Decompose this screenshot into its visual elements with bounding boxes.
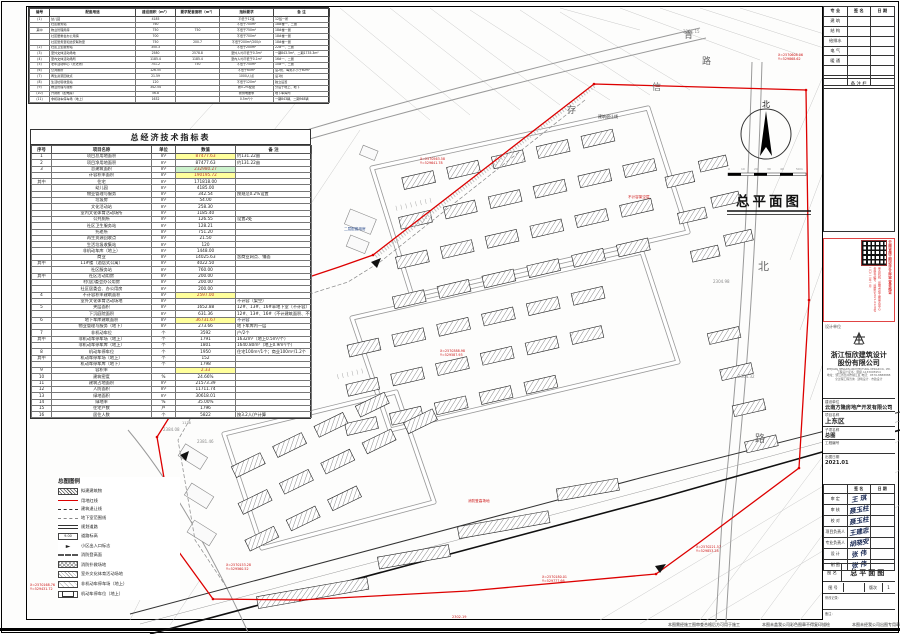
- field-box: 工程编号: [823, 439, 895, 452]
- dashdot-swatch-icon: [58, 509, 78, 510]
- date-cell: [871, 26, 895, 36]
- company-name-line2: 股份有限公司: [823, 359, 895, 367]
- dashw-swatch-icon: [58, 554, 78, 556]
- column-header: 备 注: [274, 9, 330, 17]
- plan-label: 50m: [796, 167, 803, 171]
- plan-label: 不计容架空层: [628, 194, 650, 199]
- column-header: 日 期: [871, 7, 895, 17]
- unit: 个: [152, 412, 176, 418]
- legend-label: 消防登高面: [81, 552, 102, 558]
- plan-label: Y=529587.93: [440, 353, 463, 357]
- legend-item: 消防登高面: [58, 552, 180, 558]
- table-row: 项目负责人王建忠: [824, 526, 895, 537]
- table-row: 审 定王 琪: [824, 493, 895, 504]
- review-stamp: 云南省施工图设计文件审查合格证 审查机构：昆明市施工图审查中心合格书编号：昆审字…: [823, 238, 895, 322]
- diag-swatch-icon: [58, 571, 78, 578]
- table-row: 给排水: [824, 36, 895, 46]
- legend-label: 拟建建筑物: [81, 488, 102, 494]
- plan-label: 2304.98: [713, 279, 730, 284]
- signoff-grid: 专 业签 名日 期建 筑结 构给排水电 气暖 通: [823, 6, 895, 86]
- plan-label: 10: [741, 167, 745, 171]
- role-cell: 审 定: [824, 493, 848, 504]
- note-box-2: 备注：: [823, 609, 895, 618]
- margin-note: 本图需经施工图审查合格后方可用于施工: [668, 622, 740, 628]
- column-header: 配套用途: [50, 9, 136, 17]
- field-box: 建设单位云南方隆房地产开发有限公司: [823, 398, 895, 411]
- stamp-title: 云南省施工图设计文件审查合格证: [888, 240, 892, 320]
- plan-label: Y=529853.28: [696, 549, 719, 553]
- field-value: 上东区: [825, 418, 893, 426]
- dbl-swatch-icon: [58, 525, 78, 529]
- table-cell: 0.5m²/个: [220, 97, 274, 103]
- discipline-cell: 暖 通: [824, 56, 848, 66]
- value: 5822: [176, 412, 236, 418]
- facilities-table: 编号配套用途建设面积（m²）要求配套面积（m²）指标要求备 注 (1)幼儿园41…: [28, 7, 329, 104]
- role-cell: 专业负责人: [824, 537, 848, 548]
- plan-label: Y=529641.78: [420, 161, 443, 165]
- plan-label: 2381.15: [683, 29, 700, 34]
- car-rect-icon: [62, 591, 74, 597]
- field-value: 云南方隆房地产开发有限公司: [825, 405, 893, 411]
- column-header: 编号: [30, 9, 50, 17]
- table-cell: 1632: [136, 97, 176, 103]
- column-header: 备 注: [236, 146, 312, 154]
- drawing-sheet: 北 总平面图 青路信存北路2384.0811362381.462381.1523…: [0, 0, 900, 634]
- legend-item: 建筑退让线: [58, 506, 180, 512]
- legend-item: 规划道路: [58, 524, 180, 530]
- column-header: [824, 485, 848, 494]
- legend-label: 用地红线: [81, 498, 98, 504]
- table-row: 专业负责人胡晓安: [824, 537, 895, 548]
- column-header: 指标要求: [220, 9, 274, 17]
- signature-cell: [847, 26, 871, 36]
- legend-item: 用地红线: [58, 498, 180, 504]
- plan-label: 2384.08: [163, 427, 180, 432]
- field-value: 2021.01: [825, 460, 893, 466]
- legend-item: 拟建建筑物: [58, 488, 180, 495]
- company-name-en: ZHEJIANG HENGXIN ARCHITECTURAL DESIGN CO…: [827, 368, 891, 371]
- plan-label: 2304.32: [738, 374, 755, 379]
- discipline-cell: [824, 66, 848, 76]
- stamp-line: 二〇二一年一月: [868, 267, 872, 319]
- table-row: [824, 66, 895, 76]
- arrow-swatch-icon: ►: [58, 543, 78, 550]
- column-header: 建设面积（m²）: [136, 9, 176, 17]
- role-cell: 设 计: [824, 548, 848, 559]
- plan-label: Y=529777.66: [542, 579, 565, 583]
- date-cell: [871, 56, 895, 66]
- column-header: 单位: [152, 146, 176, 154]
- note-box-1: 修改记录：: [823, 593, 895, 607]
- item-name: 居住人数: [52, 412, 152, 418]
- column-header: 要求配套面积（m²）: [176, 9, 220, 17]
- margin-note: 本图未盖我公司彩色图章不得复印描绘: [762, 622, 830, 628]
- plan-label: 建筑退让线: [598, 113, 618, 119]
- hatch-swatch-icon: [58, 488, 78, 495]
- plan-label: Y=529560.52: [226, 567, 249, 571]
- table-cell: (11): [30, 97, 50, 103]
- plan-label: 存: [567, 104, 576, 116]
- plan-label: 30: [767, 167, 771, 171]
- legend-label: 消防扑救场地: [81, 562, 106, 568]
- light-swatch-icon: [58, 581, 78, 588]
- column-header: 签 名: [847, 7, 871, 17]
- north-label: 北: [762, 100, 770, 109]
- legend-label: 小区出入口标志: [81, 543, 110, 549]
- table-row: 暖 通: [824, 56, 895, 66]
- elev-swatch-icon: 9.00: [58, 533, 78, 540]
- column-header: 日 期: [871, 485, 895, 494]
- plan-label: 2381.46: [197, 439, 214, 444]
- date-cell: [871, 504, 895, 515]
- revision-value: 1: [883, 584, 895, 592]
- signature-cell: [847, 36, 871, 46]
- stamp-line: 审查机构：昆明市施工图审查中心: [877, 267, 881, 319]
- signature-cell: [847, 46, 871, 56]
- plan-label: 40: [780, 167, 784, 171]
- column-header: 签 名: [847, 485, 871, 494]
- legend-label: 机动车停车位（地上）: [81, 591, 123, 597]
- discipline-cell: 电 气: [824, 46, 848, 56]
- date-cell: [871, 16, 895, 26]
- plan-label: 0: [728, 167, 730, 171]
- stamp-line: 合格书编号：昆审字2021-0128号: [872, 267, 876, 319]
- dash-swatch-icon: [58, 518, 78, 519]
- plan-label: 1136: [182, 421, 191, 425]
- signature-cell: [847, 66, 871, 76]
- signature-cell: [847, 56, 871, 66]
- company-logo-icon: [851, 331, 867, 347]
- field-box: 项目名称上东区: [823, 411, 895, 426]
- economic-indicators-table: 总经济技术指标表 序号项目名称单位数值备 注 1项目总用地面积m²87477.6…: [30, 129, 311, 419]
- field-box: 子项名称总图: [823, 426, 895, 439]
- drawing-name-row: 图 名 总平面图: [823, 563, 895, 581]
- empty-remarks-box: [823, 88, 895, 232]
- date-cell: [871, 515, 895, 526]
- legend-label: 非机动车停车场（地上）: [81, 581, 127, 587]
- table-row: 结 构: [824, 26, 895, 36]
- legend: 总图图例 拟建建筑物用地红线建筑退让线地下室范围线规划道路9.00道路标高►小区…: [58, 477, 180, 600]
- plan-label: Y=529431.72: [30, 587, 53, 591]
- legend-label: 地下室范围线: [81, 515, 106, 521]
- table-cell: [176, 97, 220, 103]
- note: 12#、13#、16#（不计建筑面积、不计容积率）: [236, 311, 312, 317]
- date-cell: [871, 526, 895, 537]
- table-row: (11)非机动车停车场（地上）16320.5m²/个一期843辆、二期948辆: [30, 97, 330, 103]
- date-cell: [871, 46, 895, 56]
- drawing-name-value: 总平面图: [842, 568, 895, 578]
- legend-item: ►小区出入口标志: [58, 543, 180, 550]
- plan-label: 信: [652, 81, 661, 93]
- column-header: 专 业: [824, 7, 848, 17]
- signature-table: 签 名日 期审 定王 琪审 核聂玉柱校 对聂玉柱项目负责人王建忠专业负责人胡晓安…: [823, 484, 895, 571]
- drawing-name-label: 图 名: [823, 564, 842, 581]
- plan-label: 20: [754, 167, 758, 171]
- date-cell: [871, 493, 895, 504]
- margin-note: 本图未经我公司出图专用章无效: [852, 622, 900, 628]
- note: 按3.2人/户计算: [236, 412, 312, 418]
- plan-label: 路: [755, 432, 765, 445]
- column-header: 序号: [32, 146, 52, 154]
- drawing-number-value: [844, 586, 864, 589]
- qr-code-icon: [861, 240, 887, 266]
- note: 住宅100m²/1个；商业100m²/1.2个: [236, 349, 312, 355]
- econ-table-title: 总经济技术指标表: [31, 130, 310, 145]
- legend-item: 消防扑救场地: [58, 561, 180, 568]
- date-cell: [871, 36, 895, 46]
- plan-label: 二层配套用房: [344, 226, 366, 231]
- table-row: 设 计张 伟: [824, 548, 895, 559]
- legend-label: 建筑退让线: [81, 506, 102, 512]
- legend-label: 道路标高: [81, 533, 98, 539]
- legend-label: 规划道路: [81, 524, 98, 530]
- redline-swatch-icon: [58, 500, 78, 501]
- legend-title: 总图图例: [58, 477, 180, 485]
- rect-swatch-icon: [58, 591, 78, 598]
- column-header: 数值: [176, 146, 236, 154]
- role-cell: 项目负责人: [824, 526, 848, 537]
- field-box: 出图日期2021.01: [823, 453, 895, 466]
- legend-item: 机动车停车位（地上）: [58, 591, 180, 598]
- note: 12#、13#、16#半地下室（不计容）: [236, 305, 312, 311]
- plan-label: 2302.19: [452, 615, 466, 619]
- legend-item: 非机动车停车场（地上）: [58, 581, 180, 588]
- signature-cell: 张 伟: [847, 548, 871, 559]
- signature-cell: 胡晓安: [847, 537, 871, 548]
- title-block: 专 业签 名日 期建 筑结 构给排水电 气暖 通 备 注 栏 云南省施工图设计文…: [822, 6, 895, 620]
- plan-label: 路: [702, 55, 711, 67]
- discipline-cell: 结 构: [824, 26, 848, 36]
- date-cell: [871, 537, 895, 548]
- drawing-number-label: 图 号: [823, 583, 844, 592]
- column-header: 项目名称: [52, 146, 152, 154]
- table-row: 建 筑: [824, 16, 895, 26]
- date-cell: [871, 66, 895, 76]
- table-row: 审 核聂玉柱: [824, 504, 895, 515]
- table-row: 校 对聂玉柱: [824, 515, 895, 526]
- plan-title: 总平面图: [736, 193, 802, 210]
- legend-item: 室外文化体育活动场地: [58, 571, 180, 578]
- legend-item: 地下室范围线: [58, 515, 180, 521]
- drawing-number-row: 图 号 版次 1: [823, 581, 895, 593]
- plan-label: Y=529868.62: [778, 57, 801, 61]
- legend-label: 室外文化体育活动场地: [81, 571, 123, 577]
- discipline-cell: 给排水: [824, 36, 848, 46]
- signature-cell: [847, 16, 871, 26]
- plan-label: 北: [758, 260, 769, 273]
- discipline-cell: 建 筑: [824, 16, 848, 26]
- row-number: 16: [32, 412, 52, 418]
- company-cert-line3: 全过程工程咨询 · 建筑设计 · 市政设计: [823, 378, 895, 382]
- date-cell: [871, 548, 895, 559]
- cross-swatch-icon: [58, 561, 78, 568]
- legend-item: 9.00道路标高: [58, 533, 180, 540]
- table-cell: 一期843辆、二期948辆: [274, 97, 330, 103]
- table-row: 电 气: [824, 46, 895, 56]
- role-cell: 审 核: [824, 504, 848, 515]
- table-cell: 非机动车停车场（地上）: [50, 97, 136, 103]
- scale-bar: [728, 173, 806, 176]
- role-cell: 校 对: [824, 515, 848, 526]
- plan-label: 消防登高场地: [468, 498, 490, 503]
- plan-title-group: 总平面图: [727, 193, 811, 215]
- table-row: 16居住人数个5822按3.2人/户计算: [32, 412, 312, 418]
- design-company: 浙江恒欣建筑设计 股份有限公司 ZHEJIANG HENGXIN ARCHITE…: [823, 330, 895, 382]
- revision-label: 版次: [864, 583, 883, 592]
